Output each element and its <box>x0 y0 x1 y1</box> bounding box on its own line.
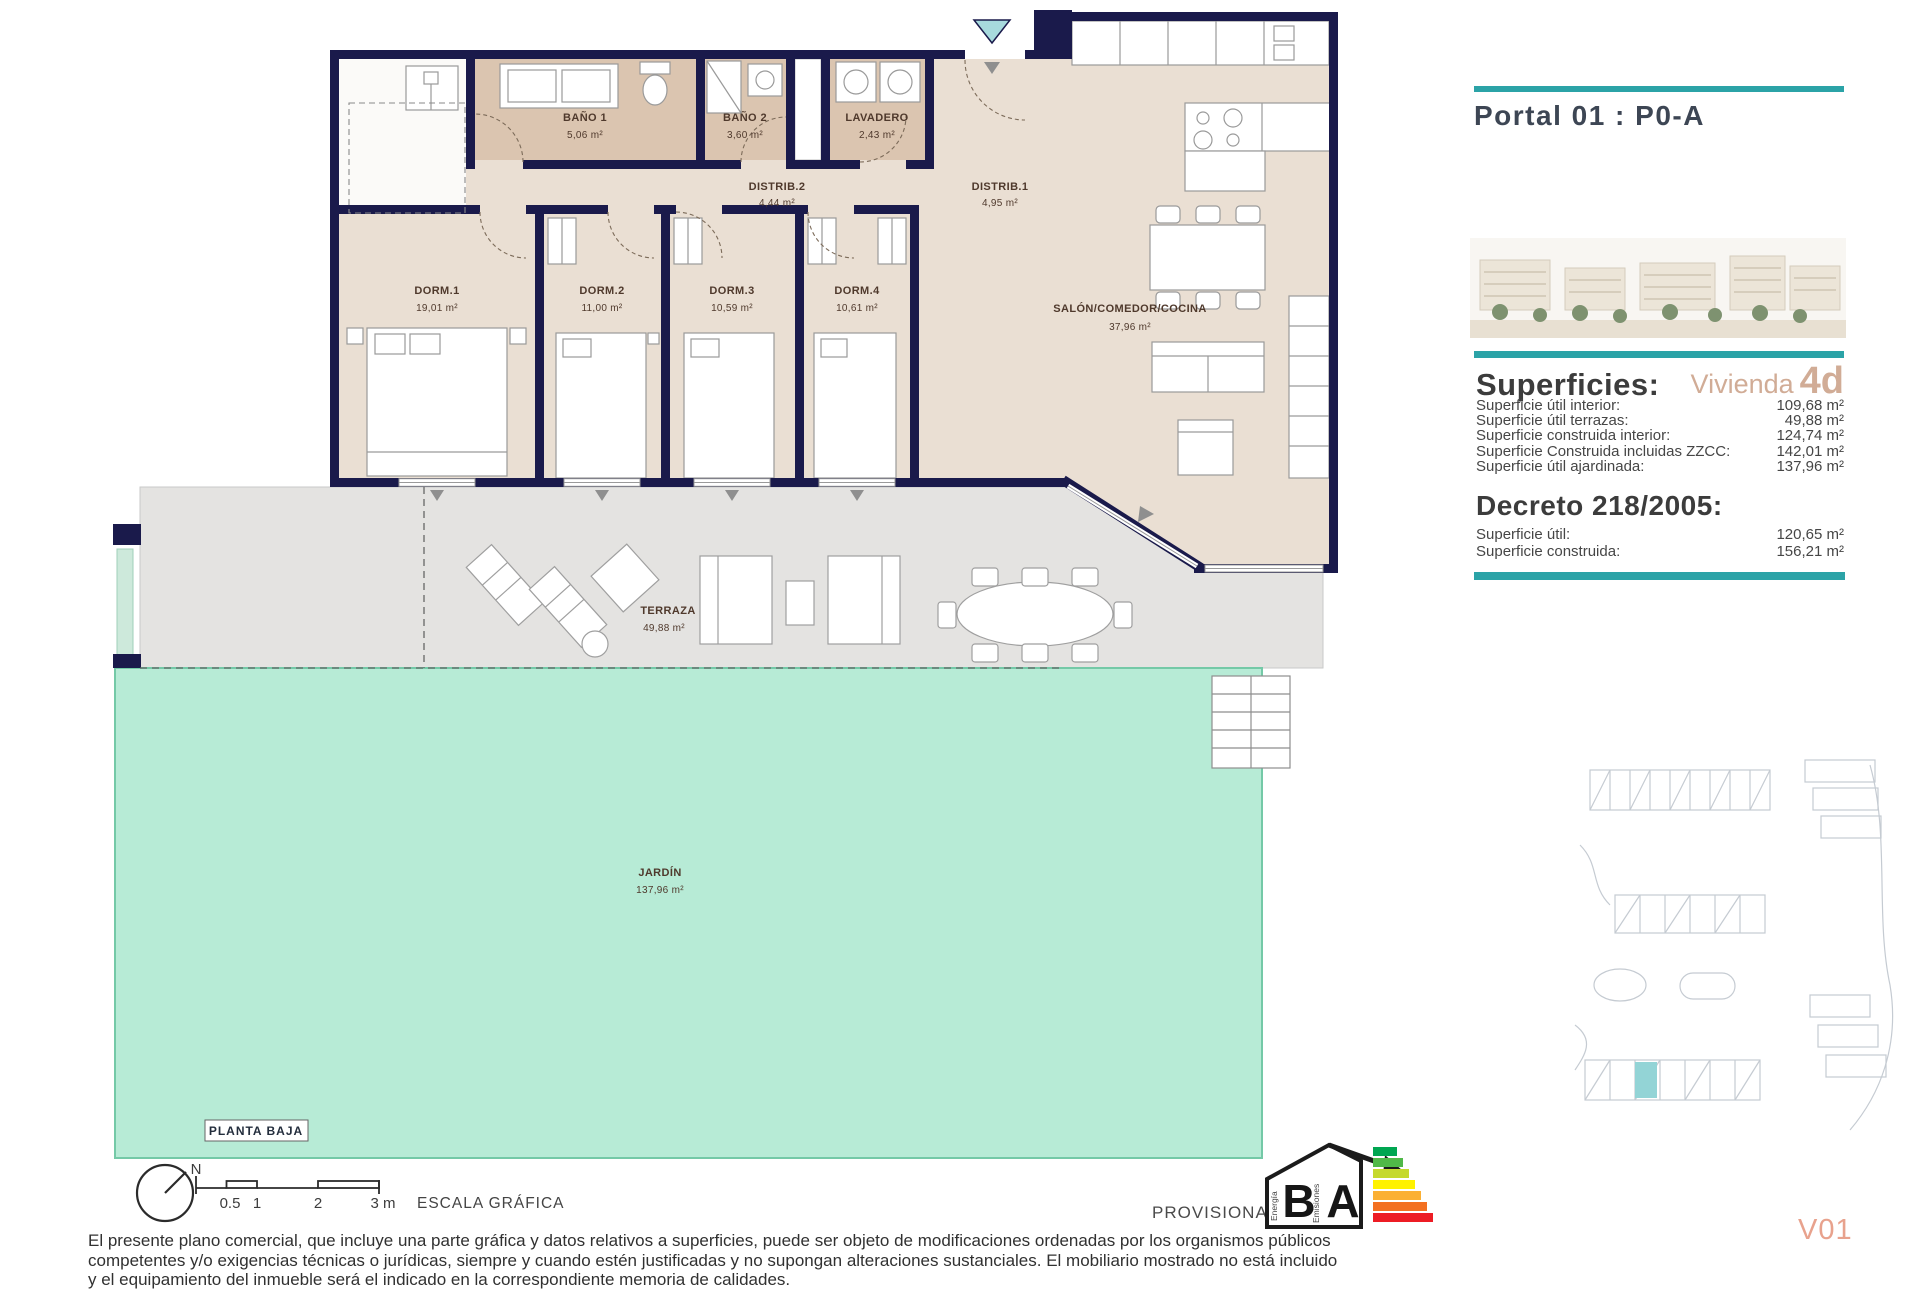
dorm4-area: 10,61 m² <box>836 303 878 314</box>
dorm2-label: DORM.2 <box>579 285 624 297</box>
distrib1-area: 4,95 m² <box>982 198 1018 209</box>
bano2-area: 3,60 m² <box>727 130 763 141</box>
table-row: Superficie útil ajardinada:137,96 m² <box>1476 459 1844 474</box>
table-row: Superficie útil:120,65 m² <box>1476 527 1844 544</box>
scale-tick: 1 <box>253 1195 261 1212</box>
bano1-label: BAÑO 1 <box>563 111 607 124</box>
wall-stub <box>113 524 141 545</box>
accent-rule-bottom <box>1474 572 1845 580</box>
scale-caption: ESCALA GRÁFICA <box>417 1195 565 1212</box>
page: BAÑO 1 5,06 m² BAÑO 2 3,60 m² LAVADERO 2… <box>0 0 1920 1280</box>
dorm2-area: 11,00 m² <box>581 303 622 314</box>
salon-label: SALÓN/COMEDOR/COCINA <box>1053 302 1206 315</box>
duct-shaft <box>795 59 821 160</box>
table-row: Superficie útil interior:109,68 m² <box>1476 398 1844 413</box>
site-plan-map <box>1560 755 1895 1145</box>
accent-rule-top <box>1474 86 1844 92</box>
table-row: Superficie Construida incluidas ZZCC:142… <box>1476 444 1844 459</box>
table-row: Superficie construida interior:124,74 m² <box>1476 428 1844 443</box>
decreto-heading: Decreto 218/2005: <box>1476 490 1723 522</box>
dorm1-label: DORM.1 <box>414 285 459 297</box>
row-label: Superficie Construida incluidas ZZCC: <box>1476 444 1730 459</box>
version-label: V01 <box>1798 1214 1853 1247</box>
dorm4-label: DORM.4 <box>834 285 880 297</box>
scale-tick: 3 m <box>370 1195 395 1212</box>
wall-stub <box>113 654 141 668</box>
exterior-stairs <box>1212 676 1290 768</box>
lavadero-area: 2,43 m² <box>859 130 895 141</box>
energy-rating-icon: B A Energía Emisiones <box>1255 1133 1440 1233</box>
building-render-image <box>1470 238 1846 338</box>
distrib2-label: DISTRIB.2 <box>749 181 806 193</box>
bano2-label: BAÑO 2 <box>723 111 767 124</box>
disclaimer-line: competentes y/o exigencias técnicas o ju… <box>88 1251 1488 1271</box>
decreto-rows: Superficie útil:120,65 m² Superficie con… <box>1476 527 1844 560</box>
row-label: Superficie útil ajardinada: <box>1476 459 1644 474</box>
distrib1-label: DISTRIB.1 <box>972 181 1029 193</box>
entrance-marker <box>974 20 1010 43</box>
dorm3-label: DORM.3 <box>709 285 754 297</box>
terraza-label: TERRAZA <box>640 605 695 617</box>
garden-area <box>115 668 1262 1158</box>
jardin-label: JARDÍN <box>638 866 681 879</box>
jardin-area: 137,96 m² <box>636 885 684 896</box>
portal-title: Portal 01 : P0-A <box>1474 100 1705 132</box>
row-label: Superficie útil terrazas: <box>1476 413 1629 428</box>
floor-plan: BAÑO 1 5,06 m² BAÑO 2 3,60 m² LAVADERO 2… <box>0 0 1560 1280</box>
table-row: Superficie construida:156,21 m² <box>1476 544 1844 561</box>
hedge <box>117 549 133 667</box>
accent-rule-mid <box>1474 351 1844 358</box>
scale-tick: 0.5 <box>220 1195 241 1212</box>
dorm3-area: 10,59 m² <box>711 303 753 314</box>
north-label: N <box>191 1161 202 1178</box>
energy-axis-energia: Energía <box>1269 1191 1279 1221</box>
vivienda-label: Vivienda <box>1691 369 1794 399</box>
scale-graphic: N 0.5 1 2 3 m ESCALA GRÁFICA <box>120 1150 840 1230</box>
north-arrow-icon: N <box>137 1161 201 1221</box>
row-value: 124,74 m² <box>1776 428 1844 443</box>
row-label: Superficie útil: <box>1476 527 1570 544</box>
table-row: Superficie útil terrazas:49,88 m² <box>1476 413 1844 428</box>
energy-axis-emisiones: Emisiones <box>1311 1184 1321 1223</box>
lavadero-label: LAVADERO <box>845 112 908 124</box>
row-value: 137,96 m² <box>1776 459 1844 474</box>
row-label: Superficie construida interior: <box>1476 428 1670 443</box>
row-value: 49,88 m² <box>1785 413 1844 428</box>
dorm1-area: 19,01 m² <box>416 303 458 314</box>
row-value: 156,21 m² <box>1776 544 1844 561</box>
scale-tick: 2 <box>314 1195 322 1212</box>
salon-area: 37,96 m² <box>1109 322 1151 333</box>
terraza-area: 49,88 m² <box>643 623 685 634</box>
disclaimer-line: El presente plano comercial, que incluye… <box>88 1231 1488 1251</box>
superficies-rows: Superficie útil interior:109,68 m² Super… <box>1476 398 1844 474</box>
bano1-area: 5,06 m² <box>567 130 603 141</box>
floor-label: PLANTA BAJA <box>205 1120 308 1141</box>
energy-letter-a: A <box>1326 1175 1359 1227</box>
row-value: 142,01 m² <box>1776 444 1844 459</box>
disclaimer-text: El presente plano comercial, que incluye… <box>88 1231 1488 1290</box>
vivienda-code: 4d <box>1800 360 1844 402</box>
highlighted-unit <box>1635 1062 1657 1098</box>
row-value: 120,65 m² <box>1776 527 1844 544</box>
row-label: Superficie útil interior: <box>1476 398 1620 413</box>
scale-bar <box>196 1176 379 1194</box>
floor-label-text: PLANTA BAJA <box>209 1124 303 1138</box>
distrib2-area: 4,44 m² <box>759 198 795 209</box>
row-value: 109,68 m² <box>1776 398 1844 413</box>
row-label: Superficie construida: <box>1476 544 1620 561</box>
